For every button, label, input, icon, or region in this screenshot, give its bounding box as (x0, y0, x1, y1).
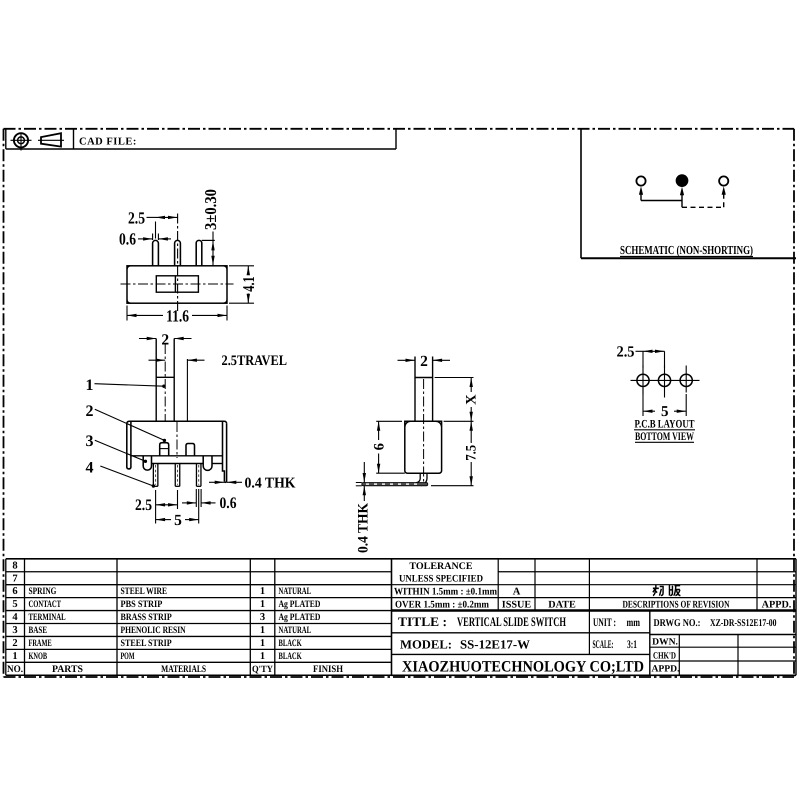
svg-text:3: 3 (86, 433, 94, 450)
svg-text:DATE: DATE (548, 600, 576, 611)
svg-text:PBS STRIP: PBS STRIP (121, 599, 163, 610)
svg-text:2: 2 (12, 638, 17, 649)
svg-text:3: 3 (260, 612, 265, 623)
svg-text:SPRING: SPRING (29, 586, 57, 597)
svg-text:CHK'D: CHK'D (653, 650, 676, 661)
svg-text:DRWG NO.:: DRWG NO.: (654, 618, 701, 629)
svg-text:2.5: 2.5 (128, 208, 145, 227)
svg-text:POM: POM (121, 651, 135, 662)
svg-text:1: 1 (260, 599, 265, 610)
svg-text:BRASS STRIP: BRASS STRIP (121, 612, 172, 623)
svg-text:0.6: 0.6 (119, 230, 136, 249)
svg-text:1: 1 (86, 377, 94, 394)
svg-text:11.6: 11.6 (166, 306, 189, 325)
svg-text:1: 1 (260, 625, 265, 636)
svg-text:2.5TRAVEL: 2.5TRAVEL (222, 353, 288, 369)
svg-text:FINISH: FINISH (313, 664, 343, 675)
svg-text:BASE: BASE (29, 625, 48, 636)
svg-text:PARTS: PARTS (52, 664, 83, 675)
svg-text:1: 1 (260, 638, 265, 649)
svg-text:4: 4 (12, 612, 18, 623)
svg-text:7.5: 7.5 (464, 445, 480, 461)
svg-text:APPD.: APPD. (652, 664, 680, 675)
svg-text:mm: mm (627, 617, 641, 629)
svg-text:SCALE:: SCALE: (593, 639, 614, 651)
svg-text:4.1: 4.1 (239, 276, 258, 292)
svg-text:7: 7 (12, 573, 17, 584)
svg-text:ISSUE: ISSUE (502, 600, 532, 611)
svg-text:UNLESS SPECIFIED: UNLESS SPECIFIED (399, 574, 483, 585)
svg-text:Ag PLATED: Ag PLATED (279, 599, 321, 610)
svg-text:6: 6 (12, 586, 17, 597)
svg-text:NO.: NO. (7, 664, 23, 675)
svg-text:2.5: 2.5 (617, 343, 635, 360)
svg-text:0.6: 0.6 (220, 495, 237, 512)
svg-text:UNIT :: UNIT : (593, 617, 616, 629)
svg-text:STEEL WIRE: STEEL WIRE (121, 586, 168, 597)
svg-text:Q'TY: Q'TY (252, 664, 273, 675)
svg-text:XZ-DR-SS12E17-00: XZ-DR-SS12E17-00 (710, 618, 777, 629)
svg-text:6: 6 (371, 443, 387, 450)
svg-text:0.4 THK: 0.4 THK (356, 502, 372, 553)
svg-text:4: 4 (86, 460, 94, 477)
svg-text:3: 3 (12, 625, 17, 636)
svg-text:SCHEMATIC (NON-SHORTING): SCHEMATIC (NON-SHORTING) (620, 243, 753, 257)
svg-text:1: 1 (12, 651, 17, 662)
svg-text:NATURAL: NATURAL (279, 586, 312, 597)
svg-text:OVER 1.5mm : ±0.2mm: OVER 1.5mm : ±0.2mm (395, 600, 489, 611)
svg-text:TITLE :: TITLE : (398, 614, 447, 629)
svg-text:3:1: 3:1 (627, 639, 637, 651)
svg-text:3±0.30: 3±0.30 (201, 189, 220, 230)
svg-text:X: X (464, 394, 480, 405)
svg-text:NATURAL: NATURAL (279, 625, 312, 636)
svg-text:8: 8 (12, 560, 17, 571)
svg-text:1: 1 (260, 651, 265, 662)
svg-text:SS-12E17-W: SS-12E17-W (460, 638, 531, 652)
svg-text:TOLERANCE: TOLERANCE (409, 561, 472, 572)
svg-text:FRAME: FRAME (29, 638, 52, 649)
svg-text:P.C.B LAYOUT: P.C.B LAYOUT (635, 419, 695, 431)
svg-text:BLACK: BLACK (279, 651, 302, 662)
svg-text:PHENOLIC RESIN: PHENOLIC RESIN (121, 625, 186, 636)
svg-text:CONTACT: CONTACT (29, 599, 62, 610)
svg-text:MODEL:: MODEL: (400, 638, 452, 652)
svg-text:VERTICAL SLIDE SWITCH: VERTICAL SLIDE SWITCH (457, 614, 566, 629)
svg-text:1: 1 (260, 586, 265, 597)
svg-text:MATERIALS: MATERIALS (161, 664, 206, 675)
svg-text:0.4 THK: 0.4 THK (245, 475, 296, 491)
svg-text:APPD.: APPD. (762, 600, 792, 611)
svg-text:2.5: 2.5 (135, 497, 152, 514)
svg-text:TERMINAL: TERMINAL (29, 612, 67, 623)
svg-text:WITHIN 1.5mm : ±0.1mm: WITHIN 1.5mm : ±0.1mm (394, 587, 497, 598)
svg-text:A: A (513, 587, 521, 598)
svg-text:2: 2 (86, 403, 94, 420)
svg-text:XIAOZHUOTECHNOLOGY CO;LTD: XIAOZHUOTECHNOLOGY CO;LTD (402, 658, 644, 675)
svg-text:BLACK: BLACK (279, 638, 302, 649)
svg-text:CAD FILE:: CAD FILE: (79, 136, 137, 147)
svg-text:5: 5 (12, 599, 17, 610)
svg-text:BOTTOM VIEW: BOTTOM VIEW (635, 431, 694, 443)
svg-text:2: 2 (161, 331, 169, 348)
svg-text:KNOB: KNOB (29, 651, 48, 662)
svg-text:STEEL STRIP: STEEL STRIP (121, 638, 172, 649)
svg-text:2: 2 (420, 353, 428, 370)
svg-text:5: 5 (174, 512, 182, 529)
svg-text:Ag PLATED: Ag PLATED (279, 612, 321, 623)
svg-text:DWN.: DWN. (652, 637, 678, 648)
svg-text:DESCRIPTIONS OF REVISION: DESCRIPTIONS OF REVISION (623, 600, 730, 611)
